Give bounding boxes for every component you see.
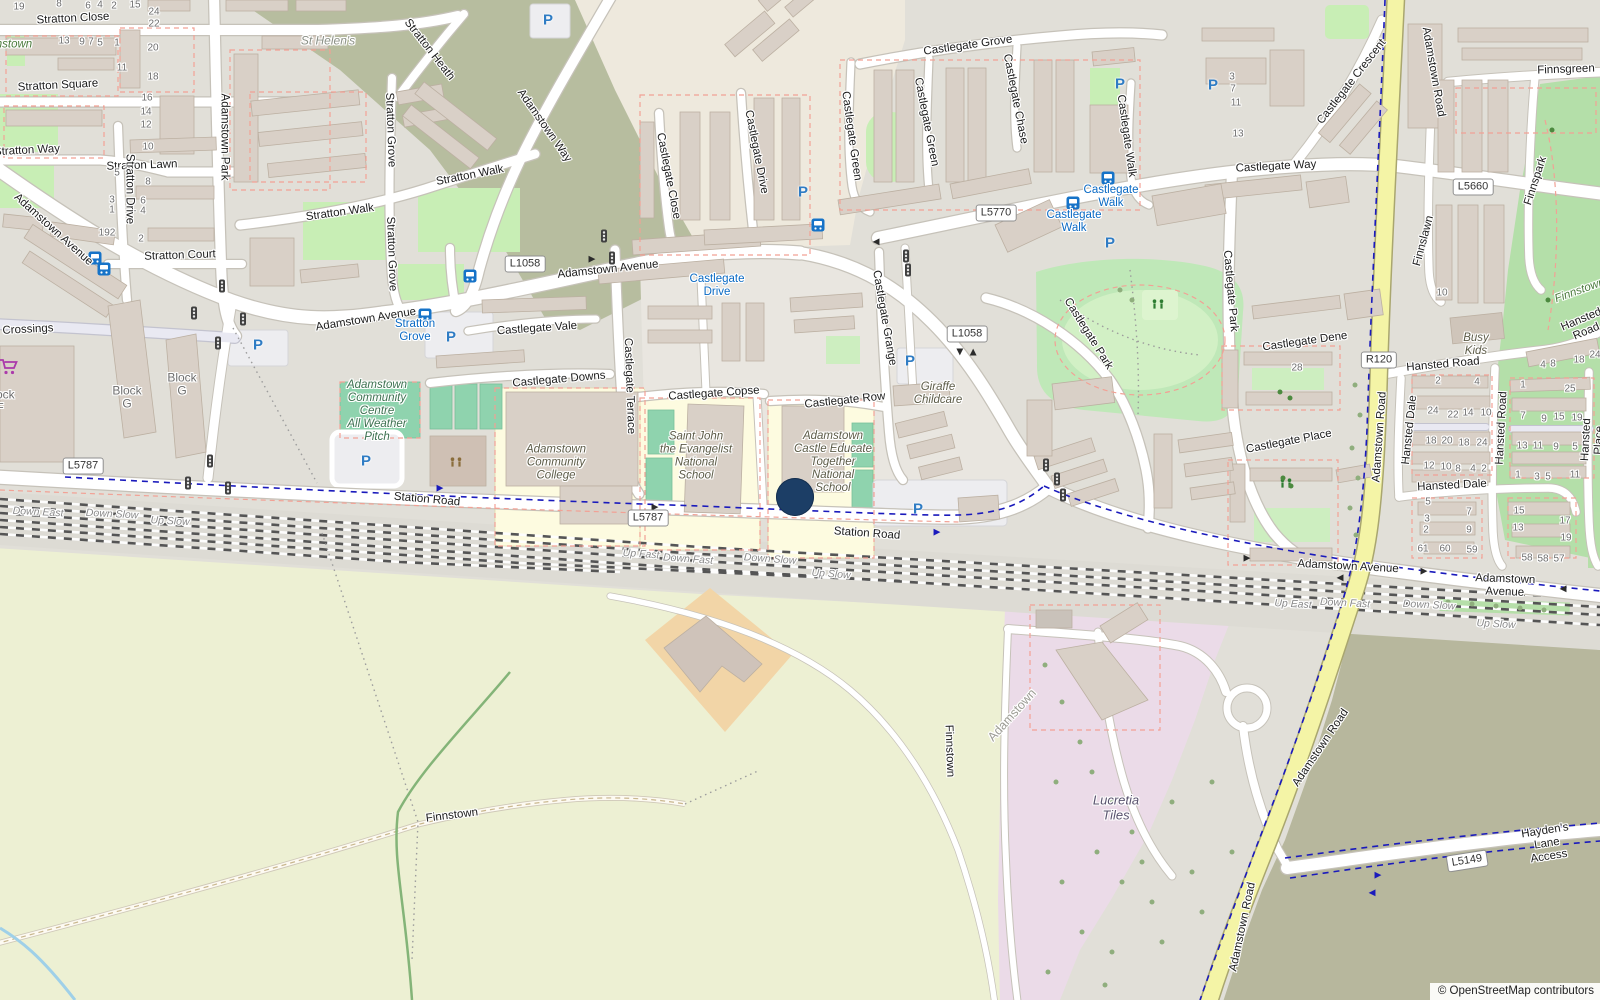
map-base-svg — [0, 0, 1600, 1000]
map-canvas[interactable]: PPPPPPPPPP▶▶▶▶▶▶▶▶▶▶▶▶▶ Stratton CloseSt… — [0, 0, 1600, 1000]
attribution-text[interactable]: © OpenStreetMap contributors — [1438, 985, 1594, 997]
attribution-bar: © OpenStreetMap contributors — [1430, 983, 1600, 1000]
